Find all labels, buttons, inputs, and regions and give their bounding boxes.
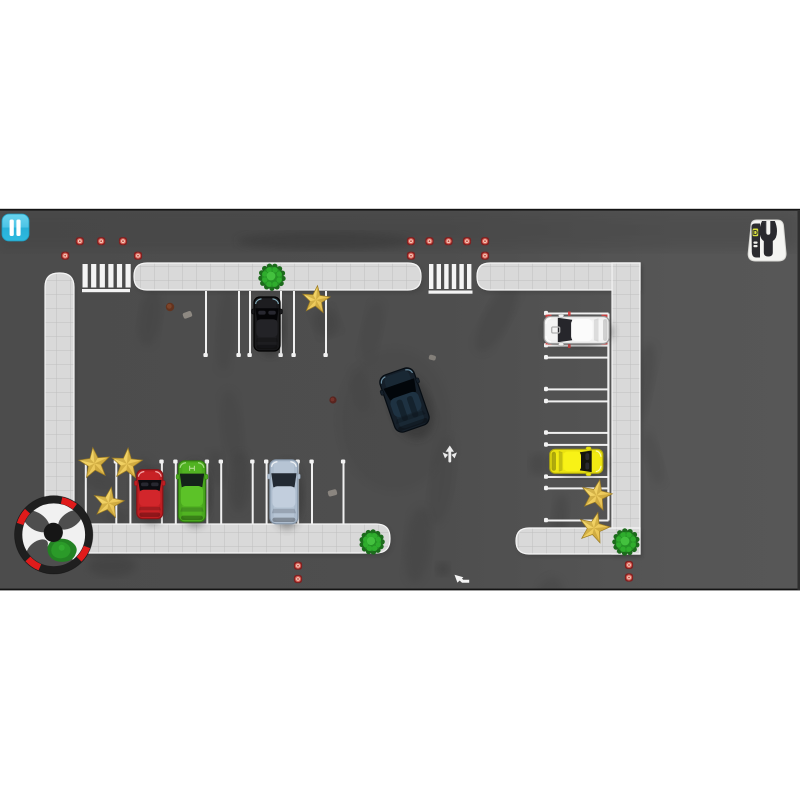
svg-text:D: D bbox=[753, 230, 758, 237]
